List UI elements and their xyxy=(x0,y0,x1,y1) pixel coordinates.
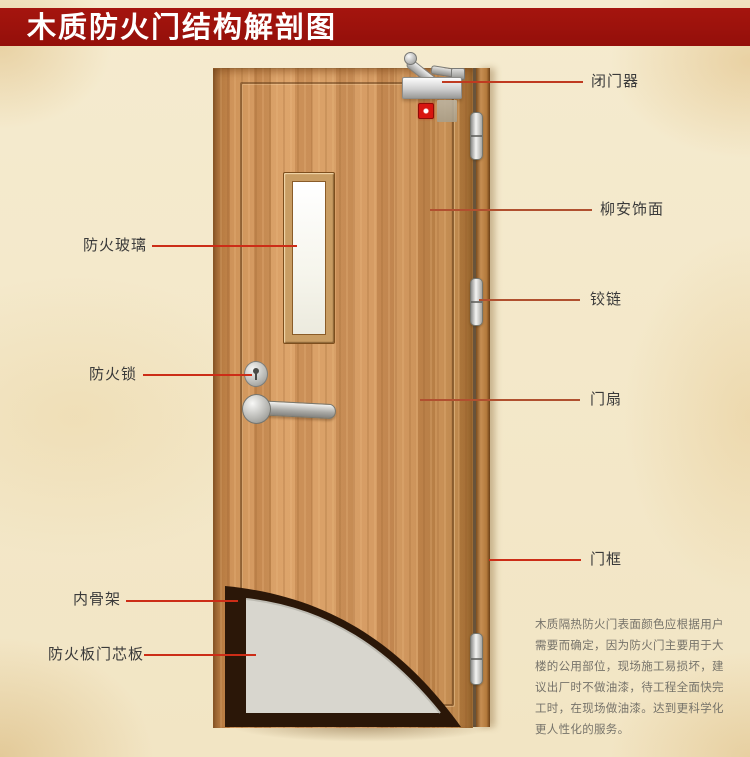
leader-line-inner-skeleton xyxy=(126,600,238,602)
leader-line-lauan-veneer xyxy=(430,209,592,211)
label-lauan-veneer: 柳安饰面 xyxy=(600,201,664,218)
fire-board-core xyxy=(246,599,440,713)
description-line: 工时，在现场做油漆。达到更科学化 xyxy=(535,698,717,719)
page-background: 木质防火门结构解剖图 xyxy=(0,0,750,757)
label-hinge: 铰链 xyxy=(590,291,622,308)
description-line: 更人性化的服务。 xyxy=(535,719,717,740)
glass-window-bevel xyxy=(283,172,335,344)
description-line: 需要而确定，因为防火门主要用于大 xyxy=(535,635,717,656)
door-frame xyxy=(476,68,490,727)
description-paragraph: 木质隔热防火门表面颜色应根据用户 需要而确定，因为防火门主要用于大 楼的公用部位… xyxy=(535,614,717,740)
label-door-leaf: 门扇 xyxy=(590,391,622,408)
certification-sticker xyxy=(437,100,457,122)
door-closer-pivot-icon xyxy=(404,52,417,65)
label-fire-board-core: 防火板门芯板 xyxy=(48,646,144,663)
label-inner-skeleton: 内骨架 xyxy=(73,591,121,608)
leader-line-hinge xyxy=(479,299,580,301)
hinge-top-icon xyxy=(470,112,483,160)
led-indicator-icon xyxy=(418,103,434,119)
leader-line-fire-lock xyxy=(143,374,252,376)
page-title: 木质防火门结构解剖图 xyxy=(27,10,337,44)
hinge-middle-icon xyxy=(470,278,483,326)
label-fire-lock: 防火锁 xyxy=(89,366,137,383)
fire-glass-window xyxy=(292,181,326,335)
leader-line-door-leaf xyxy=(420,399,580,401)
lever-rose-icon xyxy=(242,394,271,424)
description-line: 楼的公用部位，现场施工易损坏，建 xyxy=(535,656,717,677)
label-fire-glass: 防火玻璃 xyxy=(83,237,147,254)
title-banner: 木质防火门结构解剖图 xyxy=(0,8,750,46)
leader-line-door-closer xyxy=(442,81,583,83)
keyhole-slot xyxy=(255,373,257,380)
label-door-frame: 门框 xyxy=(590,551,622,568)
leader-line-fire-board-core xyxy=(144,654,256,656)
description-line: 议出厂时不做油漆，待工程全面快完 xyxy=(535,677,717,698)
label-door-closer: 闭门器 xyxy=(591,73,639,90)
leader-line-fire-glass xyxy=(152,245,297,247)
description-line: 木质隔热防火门表面颜色应根据用户 xyxy=(535,614,717,635)
leader-line-door-frame xyxy=(489,559,581,561)
